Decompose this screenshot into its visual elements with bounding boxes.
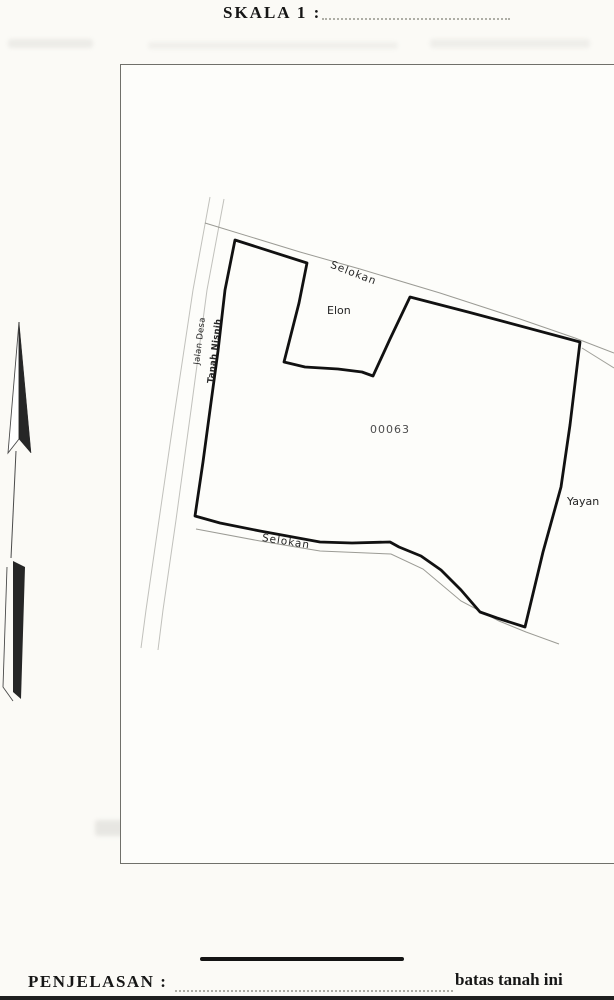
scanned-survey-document: { "document": { "type": "scanned land su… [0,0,614,1000]
road-line [141,197,210,648]
yayan-owner-label: Yayan [567,495,599,508]
north-arrow-icon [0,315,40,715]
ditch-line-bottom [196,529,559,644]
boundary-symbol-line [200,957,404,961]
parcel-number-label: 00063 [370,423,410,436]
scan-edge [0,996,614,1000]
map-linework [0,0,614,1000]
road-line [158,199,224,650]
legend-title: PENJELASAN : [28,972,167,992]
boundary-legend-label: batas tanah ini [455,970,563,990]
legend-dotted-line [175,975,453,992]
elon-parcel-label: Elon [327,304,351,317]
